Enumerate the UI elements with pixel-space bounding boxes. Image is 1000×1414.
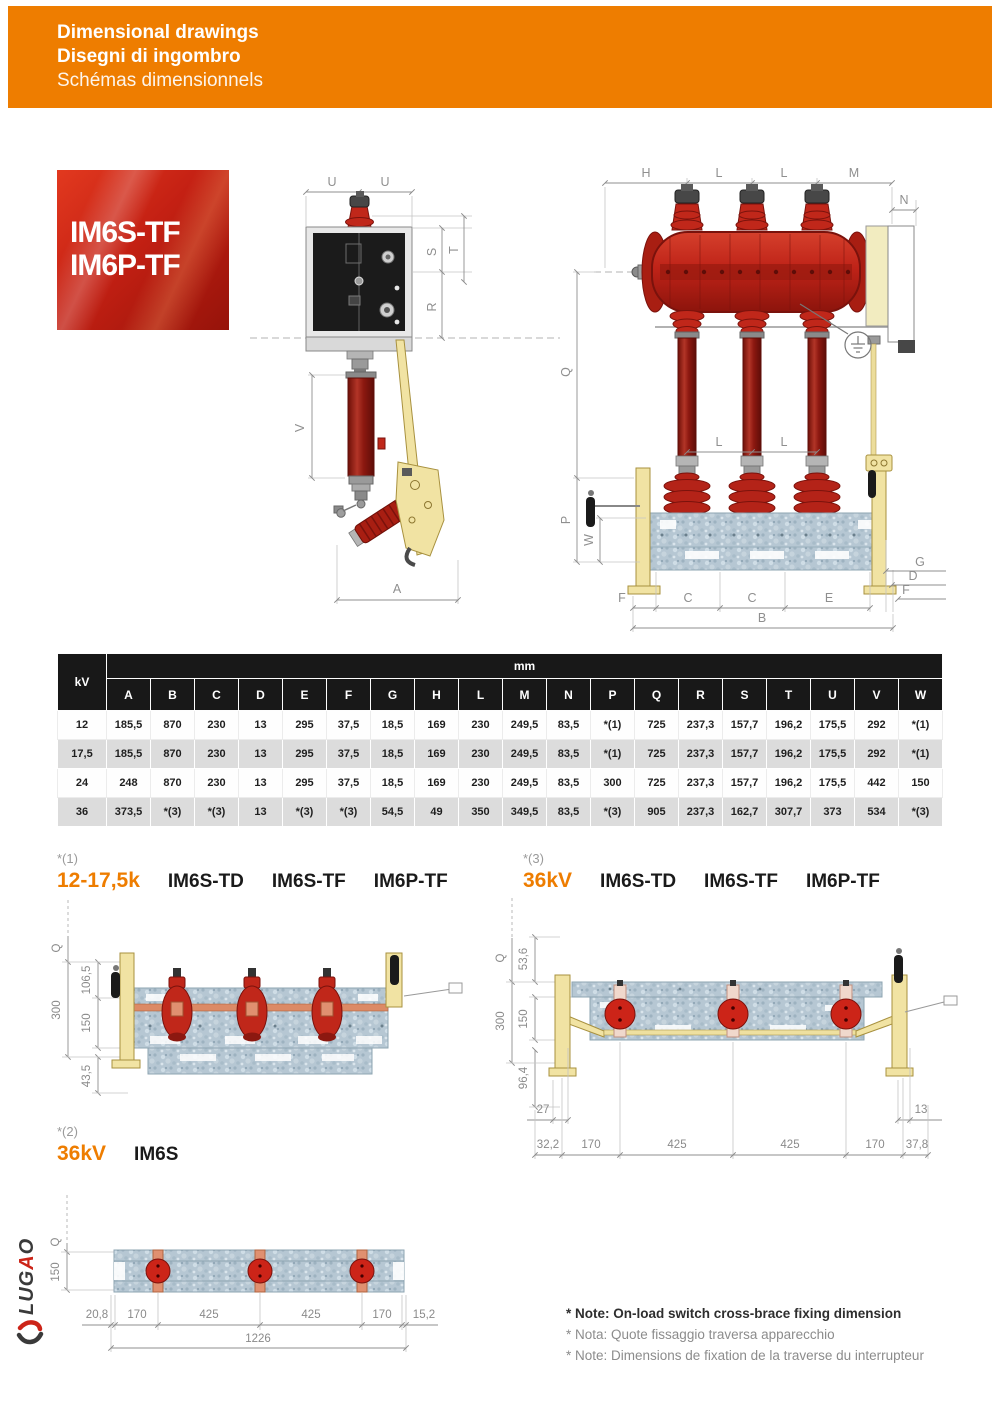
table-value-cell: *(1) xyxy=(899,740,943,769)
catalog-page: { "header":{"title_en":"Dimensional draw… xyxy=(0,0,1000,1414)
table-row: 36373,5*(3)*(3)13*(3)*(3)54,549350349,58… xyxy=(58,798,943,827)
table-value-cell: 157,7 xyxy=(723,740,767,769)
section-3-model-1: IM6S-TD xyxy=(600,871,676,893)
table-value-cell: 37,5 xyxy=(327,711,371,740)
table-kv-cell: 12 xyxy=(58,711,107,740)
table-column-header: T xyxy=(767,679,811,711)
table-letters-row: ABCDEFGHLMNPQRSTUVW xyxy=(58,679,943,711)
table-value-cell: *(3) xyxy=(195,798,239,827)
dim-label-e: E xyxy=(825,591,833,605)
table-column-header: S xyxy=(723,679,767,711)
lugao-logo-icon xyxy=(16,1318,44,1348)
dim-label-f-2: F xyxy=(902,583,910,597)
dim-label-c-2: C xyxy=(747,591,756,605)
table-column-header: A xyxy=(107,679,151,711)
table-value-cell: 237,3 xyxy=(679,740,723,769)
table-value-cell: 905 xyxy=(635,798,679,827)
table-value-cell: 249,5 xyxy=(503,711,547,740)
dim-label-w: W xyxy=(582,534,596,546)
table-value-cell: 237,3 xyxy=(679,769,723,798)
table-value-cell: 373 xyxy=(811,798,855,827)
dim-label-u-2: U xyxy=(380,175,389,189)
section-3-header: *(3) 36kV IM6S-TD IM6S-TF IM6P-TF xyxy=(523,851,880,893)
dim-label-q: Q xyxy=(559,367,573,377)
logo-part3: O xyxy=(16,1238,38,1255)
table-value-cell: 292 xyxy=(855,711,899,740)
table-value-cell: 37,5 xyxy=(327,769,371,798)
table-value-cell: 349,5 xyxy=(503,798,547,827)
table-value-cell: 196,2 xyxy=(767,711,811,740)
dim-label-a: A xyxy=(393,582,402,596)
table-value-cell: 169 xyxy=(415,711,459,740)
table-value-cell: 196,2 xyxy=(767,769,811,798)
table-value-cell: 83,5 xyxy=(547,711,591,740)
detail1-label-300: 300 xyxy=(51,1000,63,1019)
table-value-cell: 350 xyxy=(459,798,503,827)
table-value-cell: 54,5 xyxy=(371,798,415,827)
table-value-cell: 230 xyxy=(459,769,503,798)
section-2-ref: *(2) xyxy=(57,1124,178,1139)
table-column-header: D xyxy=(239,679,283,711)
table-column-header: P xyxy=(591,679,635,711)
lower-insulators xyxy=(664,311,840,526)
dim-label-f-1: F xyxy=(618,591,626,605)
dim-label-r: R xyxy=(425,302,439,311)
section-2-header: *(2) 36kV IM6S xyxy=(57,1124,178,1166)
dim-label-n: N xyxy=(899,193,908,207)
detail2-dim-4: 425 xyxy=(301,1309,320,1321)
table-value-cell: 230 xyxy=(459,711,503,740)
detail3-label-96: 96,4 xyxy=(518,1066,530,1089)
detail3-dim-3: 425 xyxy=(667,1139,686,1151)
table-value-cell: 307,7 xyxy=(767,798,811,827)
footnotes: * Note: On-load switch cross-brace fixin… xyxy=(566,1303,976,1366)
table-column-header: R xyxy=(679,679,723,711)
table-column-header: F xyxy=(327,679,371,711)
detail1-label-43: 43,5 xyxy=(81,1065,93,1087)
section-2-range: 36kV xyxy=(57,1142,106,1166)
table-body: 12185,58702301329537,518,5169230249,583,… xyxy=(58,711,943,827)
table-value-cell: *(3) xyxy=(327,798,371,827)
dimension-table: kV mm ABCDEFGHLMNPQRSTUVW 12185,58702301… xyxy=(57,653,943,827)
table-value-cell: 83,5 xyxy=(547,740,591,769)
table-value-cell: 13 xyxy=(239,740,283,769)
table-column-header: M xyxy=(503,679,547,711)
table-value-cell: 49 xyxy=(415,798,459,827)
dim-label-g: G xyxy=(915,555,925,569)
detail3-label-13: 13 xyxy=(915,1104,928,1116)
table-column-header: N xyxy=(547,679,591,711)
detail2-total-dim: 1226 xyxy=(245,1333,271,1345)
table-value-cell: 196,2 xyxy=(767,740,811,769)
footnote-fr: * Note: Dimensions de fixation de la tra… xyxy=(566,1345,976,1366)
section-1-model-2: IM6S-TF xyxy=(272,871,346,893)
section-3-model-3: IM6P-TF xyxy=(806,871,880,893)
table-value-cell: 870 xyxy=(151,769,195,798)
tank-bushings xyxy=(671,184,833,230)
detail2-label-q: Q xyxy=(50,1237,62,1246)
table-value-cell: 18,5 xyxy=(371,769,415,798)
table-column-header: W xyxy=(899,679,943,711)
table-column-header: Q xyxy=(635,679,679,711)
table-value-cell: 157,7 xyxy=(723,711,767,740)
table-row: 12185,58702301329537,518,5169230249,583,… xyxy=(58,711,943,740)
section-1-ref: *(1) xyxy=(57,851,448,866)
table-column-header: E xyxy=(283,679,327,711)
table-value-cell: 295 xyxy=(283,769,327,798)
dim-label-l-1: L xyxy=(716,166,723,180)
dim-label-b: B xyxy=(758,611,766,625)
table-value-cell: 185,5 xyxy=(107,740,151,769)
detail2-dim-1: 20,8 xyxy=(86,1309,108,1321)
drawing-detail-3: Q 53,6 300 150 96,4 xyxy=(495,898,957,1159)
detail3-label-150: 150 xyxy=(518,1009,530,1028)
table-value-cell: 295 xyxy=(283,740,327,769)
table-value-cell: 534 xyxy=(855,798,899,827)
table-value-cell: 292 xyxy=(855,740,899,769)
detail3-label-27: 27 xyxy=(537,1104,550,1116)
table-value-cell: 83,5 xyxy=(547,798,591,827)
table-value-cell: 230 xyxy=(459,740,503,769)
table-column-header: B xyxy=(151,679,195,711)
table-value-cell: 248 xyxy=(107,769,151,798)
drawing-detail-1: Q 300 106,5 150 43,5 xyxy=(51,900,462,1093)
table-value-cell: 300 xyxy=(591,769,635,798)
table-value-cell: 237,3 xyxy=(679,798,723,827)
brand-logo-text: LUGAO xyxy=(16,1215,42,1315)
table-value-cell: *(1) xyxy=(591,711,635,740)
table-value-cell: *(3) xyxy=(591,798,635,827)
table-value-cell: 870 xyxy=(151,740,195,769)
table-column-header: U xyxy=(811,679,855,711)
detail3-label-q: Q xyxy=(495,953,507,962)
table-value-cell: 725 xyxy=(635,740,679,769)
table-column-header: C xyxy=(195,679,239,711)
section-3-range: 36kV xyxy=(523,869,572,893)
table-kv-cell: 17,5 xyxy=(58,740,107,769)
table-value-cell: 169 xyxy=(415,740,459,769)
detail3-dim-2: 170 xyxy=(581,1139,600,1151)
table-value-cell: *(1) xyxy=(591,740,635,769)
table-row: 17,5185,58702301329537,518,5169230249,58… xyxy=(58,740,943,769)
section-1-header: *(1) 12-17,5k IM6S-TD IM6S-TF IM6P-TF xyxy=(57,851,448,893)
detail3-label-53: 53,6 xyxy=(518,948,530,970)
table-value-cell: 13 xyxy=(239,769,283,798)
section-3-ref: *(3) xyxy=(523,851,880,866)
dim-label-s: S xyxy=(425,248,439,256)
table-value-cell: 175,5 xyxy=(811,769,855,798)
table-value-cell: 442 xyxy=(855,769,899,798)
detail1-label-q: Q xyxy=(51,943,63,952)
dim-label-c-1: C xyxy=(683,591,692,605)
footnote-en: * Note: On-load switch cross-brace fixin… xyxy=(566,1303,976,1324)
table-value-cell: 157,7 xyxy=(723,769,767,798)
detail2-dim-5: 170 xyxy=(372,1309,391,1321)
dim-label-t: T xyxy=(447,246,461,254)
table-kv-header: kV xyxy=(58,654,107,711)
dim-label-h: H xyxy=(641,166,650,180)
dim-label-l-3: L xyxy=(716,435,723,449)
logo-part1: LUG xyxy=(16,1270,38,1315)
dim-label-p: P xyxy=(559,516,573,524)
table-value-cell: 13 xyxy=(239,711,283,740)
table-value-cell: 725 xyxy=(635,769,679,798)
table-value-cell: 83,5 xyxy=(547,769,591,798)
dim-label-u-1: U xyxy=(327,175,336,189)
table-value-cell: 870 xyxy=(151,711,195,740)
table-value-cell: 13 xyxy=(239,798,283,827)
detail3-label-300: 300 xyxy=(495,1011,507,1030)
table-value-cell: 169 xyxy=(415,769,459,798)
table-value-cell: 185,5 xyxy=(107,711,151,740)
table-value-cell: 175,5 xyxy=(811,740,855,769)
section-1-model-3: IM6P-TF xyxy=(374,871,448,893)
detail1-label-150: 150 xyxy=(81,1013,93,1032)
table-column-header: H xyxy=(415,679,459,711)
table-value-cell: 162,7 xyxy=(723,798,767,827)
table-value-cell: 150 xyxy=(899,769,943,798)
detail3-dim-4: 425 xyxy=(780,1139,799,1151)
table-value-cell: 295 xyxy=(283,711,327,740)
footnote-it: * Nota: Quote fissaggio traversa apparec… xyxy=(566,1324,976,1345)
table-value-cell: 725 xyxy=(635,711,679,740)
section-1-model-1: IM6S-TD xyxy=(168,871,244,893)
section-2-model-1: IM6S xyxy=(134,1144,178,1166)
detail2-dim-6: 15,2 xyxy=(413,1309,435,1321)
detail2-dim-2: 170 xyxy=(127,1309,146,1321)
drawing-detail-2: Q 150 xyxy=(50,1195,438,1352)
table-value-cell: 249,5 xyxy=(503,769,547,798)
dim-label-v: V xyxy=(293,423,307,432)
detail3-dim-6: 37,8 xyxy=(906,1139,928,1151)
detail2-label-150: 150 xyxy=(50,1262,62,1281)
table-value-cell: 18,5 xyxy=(371,740,415,769)
table-value-cell: *(1) xyxy=(899,711,943,740)
table-value-cell: 37,5 xyxy=(327,740,371,769)
table-kv-cell: 36 xyxy=(58,798,107,827)
dim-label-d: D xyxy=(908,569,917,583)
table-value-cell: 175,5 xyxy=(811,711,855,740)
detail1-label-106: 106,5 xyxy=(81,966,93,995)
table-value-cell: 230 xyxy=(195,740,239,769)
drawing-side-view: U U V xyxy=(250,175,560,604)
table-column-header: G xyxy=(371,679,415,711)
table-value-cell: 230 xyxy=(195,711,239,740)
section-3-model-2: IM6S-TF xyxy=(704,871,778,893)
dim-label-l-2: L xyxy=(781,166,788,180)
table-value-cell: *(3) xyxy=(151,798,195,827)
table-value-cell: *(3) xyxy=(283,798,327,827)
table-column-header: L xyxy=(459,679,503,711)
detail3-dim-5: 170 xyxy=(865,1139,884,1151)
table-value-cell: 230 xyxy=(195,769,239,798)
table-value-cell: 237,3 xyxy=(679,711,723,740)
table-row: 242488702301329537,518,5169230249,583,53… xyxy=(58,769,943,798)
detail3-dim-1: 32,2 xyxy=(537,1139,559,1151)
section-1-range: 12-17,5k xyxy=(57,869,140,893)
table-value-cell: *(3) xyxy=(899,798,943,827)
dim-label-m: M xyxy=(849,166,859,180)
table-unit-header: mm xyxy=(107,654,943,679)
table-kv-cell: 24 xyxy=(58,769,107,798)
logo-part2: A xyxy=(16,1254,38,1269)
table-value-cell: 18,5 xyxy=(371,711,415,740)
drawing-front-view: H L L M N xyxy=(559,166,946,632)
dim-label-l-4: L xyxy=(781,435,788,449)
table-value-cell: 249,5 xyxy=(503,740,547,769)
table-column-header: V xyxy=(855,679,899,711)
detail2-dim-3: 425 xyxy=(199,1309,218,1321)
table-value-cell: 373,5 xyxy=(107,798,151,827)
